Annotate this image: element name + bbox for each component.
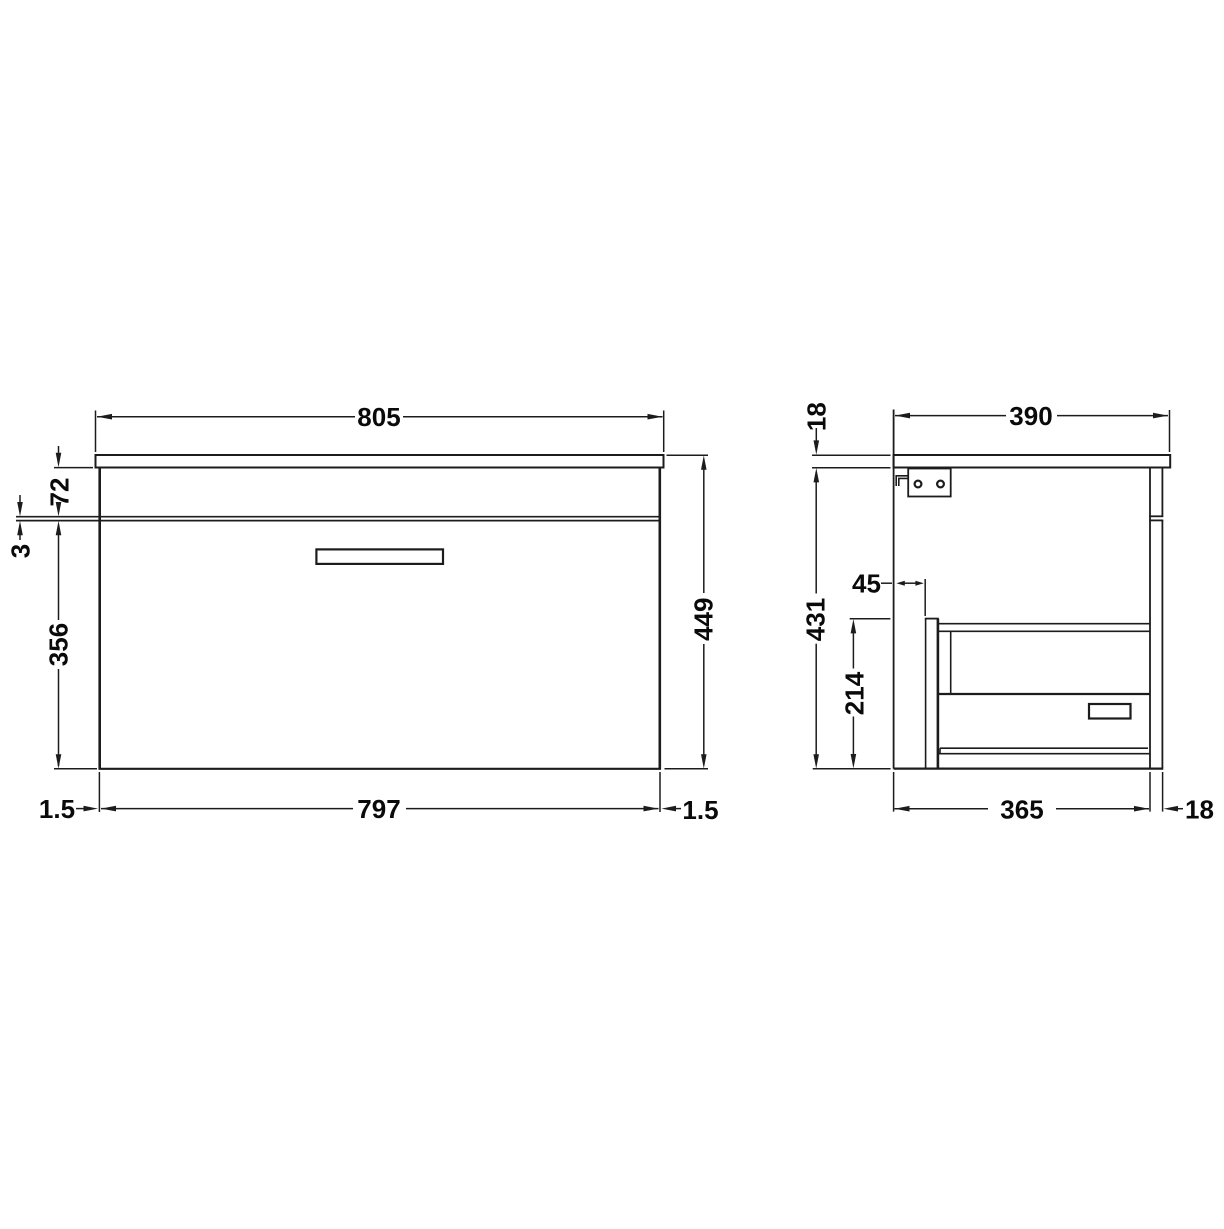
svg-text:214: 214 <box>840 671 870 715</box>
svg-text:1.5: 1.5 <box>39 794 75 824</box>
svg-text:72: 72 <box>44 478 74 507</box>
svg-text:18: 18 <box>802 402 832 431</box>
svg-text:3: 3 <box>6 544 36 558</box>
svg-text:365: 365 <box>1000 795 1043 825</box>
svg-text:390: 390 <box>1009 401 1052 431</box>
svg-text:797: 797 <box>357 794 400 824</box>
svg-text:1.5: 1.5 <box>682 795 718 825</box>
svg-text:356: 356 <box>44 623 74 666</box>
svg-text:431: 431 <box>801 598 831 641</box>
svg-text:45: 45 <box>852 569 881 599</box>
svg-text:805: 805 <box>357 402 400 432</box>
svg-text:449: 449 <box>689 598 719 641</box>
svg-text:18: 18 <box>1185 795 1214 825</box>
